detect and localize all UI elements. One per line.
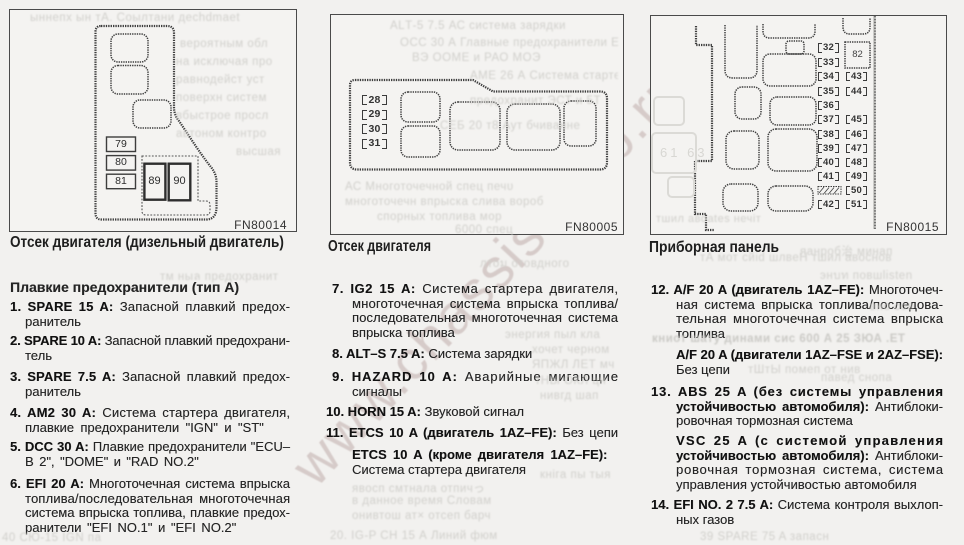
svg-text:61 63: 61 63 (660, 145, 708, 160)
